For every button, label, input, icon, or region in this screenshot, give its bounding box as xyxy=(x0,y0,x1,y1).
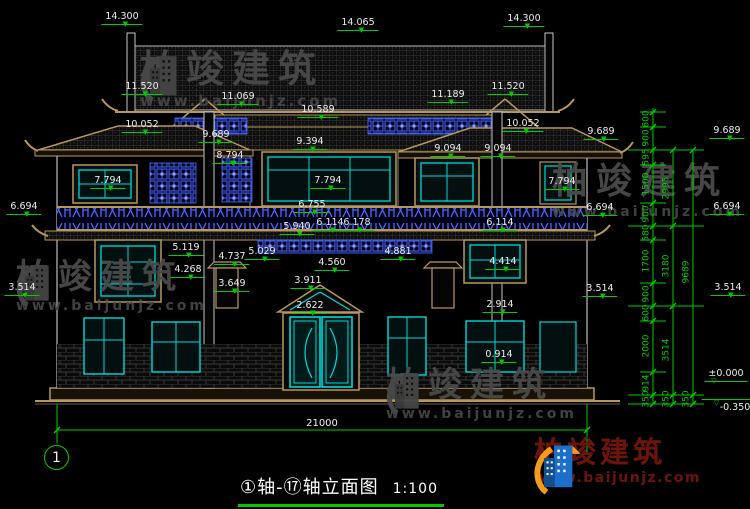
dim-chain-value: 3180 xyxy=(663,255,672,278)
dim-chain-value: 600 xyxy=(643,110,652,127)
dim-chain-value: 1500 xyxy=(643,173,652,196)
drawing-scale: 1:100 xyxy=(393,481,438,497)
elevation-label: 4.414 xyxy=(485,257,520,270)
elevation-label: 9.394 xyxy=(292,137,327,150)
elevation-label: 5.029 xyxy=(244,247,279,260)
elevation-label: 7.794 xyxy=(544,177,579,190)
dim-chain-value: 2995 xyxy=(663,177,672,200)
elevation-label: 3.514 xyxy=(582,284,617,297)
dim-chain-value: 1700 xyxy=(643,250,652,273)
dim-chain-value: 3514 xyxy=(663,339,672,362)
elevation-label: 4.268 xyxy=(170,265,205,278)
elevation-label: 2.914 xyxy=(482,300,517,313)
elevation-label: 6.694 xyxy=(582,203,617,216)
elevation-label: 4.737 xyxy=(214,252,249,265)
elevation-label: 0.914 xyxy=(481,350,516,363)
elevation-label: 9.689 xyxy=(583,127,618,140)
elevation-label: 8.794 xyxy=(212,151,247,164)
axis-bubble-1: 1 xyxy=(44,445,69,470)
dim-chain-value: 595 xyxy=(643,148,652,165)
elevation-label: 11.520 xyxy=(487,82,528,95)
elevation-label: 14.065 xyxy=(337,18,378,31)
elevation-label: 10.589 xyxy=(297,105,338,118)
elevation-label: 4.881 xyxy=(380,247,415,260)
drawing-title: ①轴-⑰轴立面图 xyxy=(240,473,379,499)
elevation-label: 10.052 xyxy=(502,119,543,132)
elevation-label: 14.300 xyxy=(503,14,544,27)
elevation-label: 11.189 xyxy=(427,90,468,103)
dim-chain-value: 900 xyxy=(643,285,652,302)
elevation-label: 11.520 xyxy=(121,82,162,95)
elevation-label: 10.052 xyxy=(121,120,162,133)
dim-chain-value: 580 xyxy=(643,224,652,241)
dimension-lines-svg xyxy=(0,0,750,509)
elevation-label: 5.119 xyxy=(168,243,203,256)
elevation-label: 3.514 xyxy=(710,283,745,296)
elevation-label: 6.755 xyxy=(294,200,329,213)
elevation-label: 9.094 xyxy=(430,144,465,157)
dim-chain-value: 350 xyxy=(643,390,652,407)
dim-chain-value: 914 xyxy=(643,374,652,391)
elevation-label: 6.114 xyxy=(482,218,517,231)
elevation-label: 6.694 xyxy=(6,202,41,215)
elevation-label: 5.940 xyxy=(279,222,314,235)
drawing-title-block: ①轴-⑰轴立面图 1:100 xyxy=(238,473,444,507)
elevation-label: ±0.000 xyxy=(704,369,747,382)
brand-logo: 柏竣建筑 www.baijunjz.com xyxy=(534,438,701,486)
elevation-label: 9.094 xyxy=(480,144,515,157)
elevation-label: 9.689 xyxy=(198,130,233,143)
brand-logo-icon xyxy=(534,438,584,498)
dim-chain-value: 900 xyxy=(643,129,652,146)
elevation-label: 2.622 xyxy=(292,301,327,314)
elevation-label: 4.560 xyxy=(314,258,349,271)
dim-chain-value: 2000 xyxy=(643,335,652,358)
elevation-label: 7.794 xyxy=(310,176,345,189)
elevation-label: -0.350 xyxy=(702,399,750,413)
elevation-label: 14.300 xyxy=(101,12,142,25)
elevation-label: 9.689 xyxy=(709,126,744,139)
overall-width-dimension: 21000 xyxy=(306,418,338,429)
dim-chain-value: 600 xyxy=(643,304,652,321)
elevation-label: 11.069 xyxy=(217,92,258,105)
dim-chain-value: 350 xyxy=(683,390,692,407)
dim-chain-value: 900 xyxy=(643,205,652,222)
dim-chain-value: 9689 xyxy=(683,261,692,284)
elevation-label: 3.911 xyxy=(290,276,325,289)
elevation-label: 6.694 xyxy=(709,202,744,215)
elevation-label: 7.794 xyxy=(90,176,125,189)
elevation-label: 3.649 xyxy=(214,279,249,292)
dim-chain-value: 350 xyxy=(663,390,672,407)
cad-elevation-drawing: 柏竣建筑www.baijunjz.com 柏竣建筑www.baijunjz.co… xyxy=(0,0,750,509)
elevation-label: 3.514 xyxy=(4,283,39,296)
elevation-label: 6.178 xyxy=(339,218,374,231)
